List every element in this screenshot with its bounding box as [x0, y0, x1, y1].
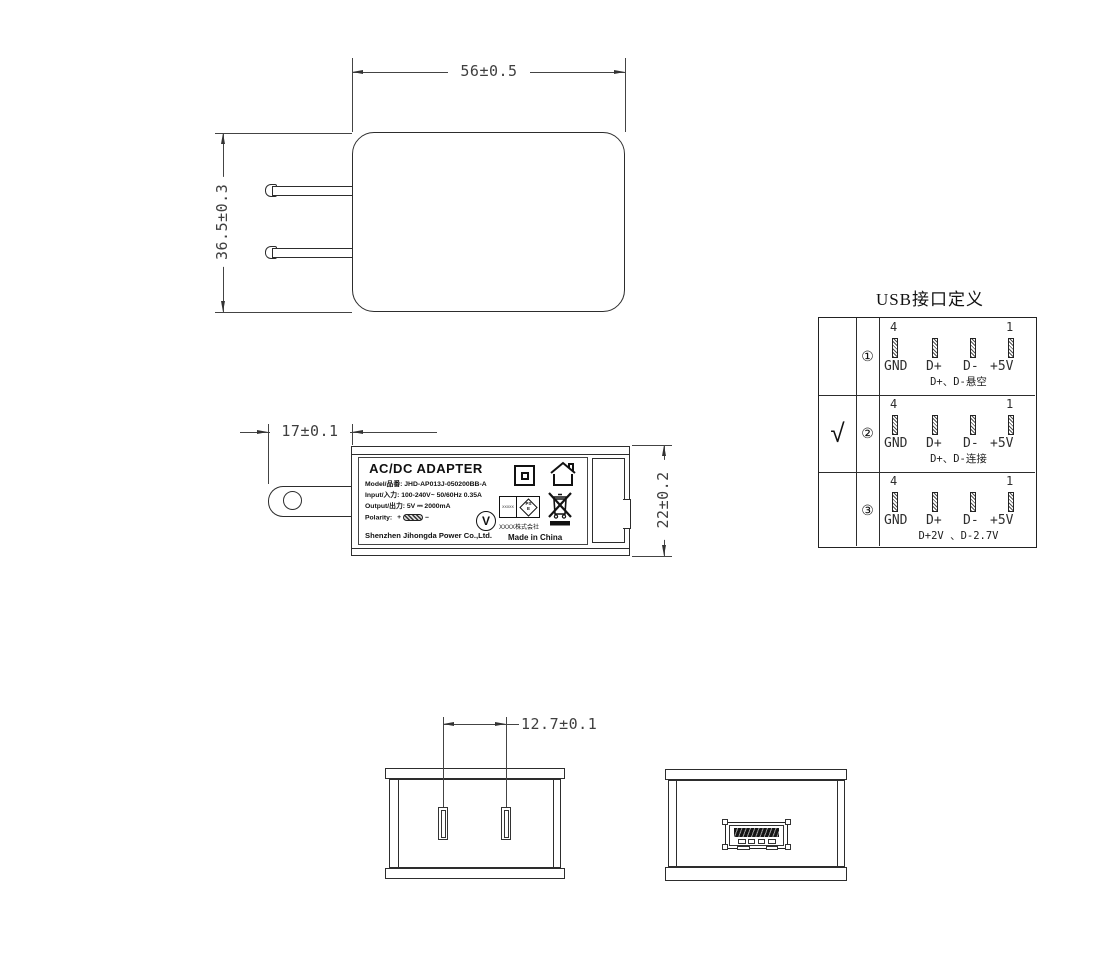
side-view-end-cap: [592, 458, 625, 543]
dimension-arrow-right: [495, 722, 506, 726]
usb-view-cap-top: [665, 769, 847, 780]
pin-contact-icon: [970, 415, 976, 435]
front-view-body: [352, 132, 625, 312]
pin-number-4: 4: [890, 398, 897, 410]
engineering-drawing: 56±0.5 36.5±0.3 17±0.1 22±0.2 AC/DC ADAP…: [0, 0, 1100, 953]
efficiency-level-icon: V: [476, 511, 496, 531]
circled-number: ③: [861, 502, 874, 519]
pse-mark: XXXXX PS E: [499, 496, 540, 518]
pin-config-note: D+2V 、D-2.7V: [879, 531, 1038, 542]
usb-port-corner-tab: [785, 844, 791, 850]
pin-label-dplus: D+: [926, 514, 942, 527]
pse-diamond-cell: PS E: [517, 497, 539, 517]
bottom-view-inner-edge: [553, 779, 554, 868]
dimension-arrow-left: [352, 70, 363, 74]
dimension-extension-line: [215, 312, 352, 313]
dimension-extension-line: [632, 445, 672, 446]
dimension-extension-line: [632, 556, 672, 557]
pse-e: E: [517, 507, 540, 512]
front-view-prong-bottom: [272, 248, 352, 258]
usb-shell-foot: [737, 846, 750, 850]
circled-number: ①: [861, 348, 874, 365]
class2-inner-square: [521, 472, 529, 480]
pin-number-4: 4: [890, 475, 897, 487]
pin-label-dplus: D+: [926, 437, 942, 450]
usb-port-corner-tab: [722, 844, 728, 850]
pin-label-dplus: D+: [926, 360, 942, 373]
plug-blade-slot-left: [438, 807, 448, 840]
dimension-arrow-right: [352, 430, 363, 434]
label-polarity-text: Polarity:: [365, 514, 392, 521]
usb-shell-foot: [766, 846, 778, 850]
pin-label-5v: +5V: [990, 360, 1013, 373]
dimension-pin-spacing-text: 12.7±0.1: [521, 717, 597, 733]
table-pin-cell: 4 1 GND D+ D- +5V D+、D-悬空: [879, 318, 1038, 395]
pse-diamond-text: PS E: [517, 502, 540, 512]
label-company-line: Shenzhen Jihongda Power Co.,Ltd.: [365, 532, 492, 540]
pin-config-note: D+、D-悬空: [879, 377, 1038, 388]
label-input-line: Input/入力: 100-240V~ 50/60Hz 0.35A: [365, 492, 482, 499]
bottom-view-cap-bottom: [385, 868, 565, 879]
polarity-plus-sign: +: [397, 514, 401, 521]
pin-label-gnd: GND: [884, 437, 907, 450]
label-made-in: Made in China: [508, 534, 562, 543]
pse-agency-text: XXXXX: [502, 505, 514, 509]
pin-contact-icon: [932, 492, 938, 512]
pin-number-1: 1: [1006, 475, 1013, 487]
usb-contact-pad: [748, 839, 755, 844]
label-model-line: Model/品番: JHD-AP013J-050200BB-A: [365, 481, 487, 488]
weee-bin-icon: [546, 490, 574, 528]
pin-label-dminus: D-: [963, 360, 979, 373]
label-output-line: Output/出力: 5V ⎓ 2000mA: [365, 503, 451, 510]
dimension-arrow-down: [221, 301, 225, 312]
dimension-width-text: 56±0.5: [448, 64, 530, 80]
dimension-arrow-up: [662, 445, 666, 456]
polarity-minus-sign: −: [425, 514, 429, 521]
dimension-extension-line: [215, 133, 352, 134]
dimension-extension-line: [625, 58, 626, 132]
usb-port-corner-tab: [785, 819, 791, 825]
pin-contact-icon: [970, 492, 976, 512]
label-cert-company: XXXX株式会社: [499, 525, 539, 532]
pin-contact-icon: [1008, 415, 1014, 435]
circled-number: ②: [861, 425, 874, 442]
table-check-cell: [819, 318, 856, 395]
dimension-extension-line: [506, 717, 507, 807]
bottom-view-inner-edge: [398, 779, 399, 868]
table-check-cell: √: [819, 395, 856, 472]
dimension-arrow-down: [662, 545, 666, 556]
usb-port-corner-tab: [722, 819, 728, 825]
dimension-extension-line: [268, 424, 269, 484]
dimension-arrow-left: [443, 722, 454, 726]
dimension-arrow-right: [614, 70, 625, 74]
pin-contact-icon: [892, 415, 898, 435]
pin-number-1: 1: [1006, 398, 1013, 410]
dimension-prong-text: 17±0.1: [270, 424, 350, 440]
usb-view-cap-bottom: [665, 867, 847, 881]
pin-number-4: 4: [890, 321, 897, 333]
dimension-extension-line: [352, 424, 353, 445]
bottom-view-cap-top: [385, 768, 565, 779]
pin-contact-icon: [932, 415, 938, 435]
indoor-use-icon: [549, 461, 577, 488]
usb-view-inner-edge: [676, 780, 677, 867]
usb-contact-tongue: [734, 828, 779, 837]
table-index-cell: ①: [856, 318, 879, 395]
pin-label-gnd: GND: [884, 514, 907, 527]
pse-agency-cell: XXXXX: [500, 497, 517, 517]
side-view-prong: [268, 486, 351, 517]
dimension-depth-text: 22±0.2: [656, 460, 672, 540]
usb-contact-pad: [738, 839, 746, 844]
class2-insulation-icon: [514, 465, 535, 486]
pin-config-note: D+、D-连接: [879, 454, 1038, 465]
table-pin-cell: 4 1 GND D+ D- +5V D+2V 、D-2.7V: [879, 472, 1038, 546]
side-view-edge-line-bottom: [351, 548, 630, 549]
usb-pin-table: ① 4 1 GND D+ D- +5V D+、D-悬空 √ ② 4 1 GND: [818, 317, 1037, 548]
nameplate-label: AC/DC ADAPTER Model/品番: JHD-AP013J-05020…: [358, 457, 588, 545]
pin-label-dminus: D-: [963, 437, 979, 450]
usb-contact-pad: [758, 839, 765, 844]
usb-table-title: USB接口定义: [845, 291, 1015, 309]
table-check-cell: [819, 472, 856, 549]
polarity-connector-icon: [403, 514, 423, 521]
pin-label-5v: +5V: [990, 437, 1013, 450]
usb-view-inner-edge: [837, 780, 838, 867]
efficiency-level-letter: V: [482, 514, 490, 528]
dimension-height-text: 36.5±0.3: [215, 177, 231, 267]
pin-label-dminus: D-: [963, 514, 979, 527]
pin-number-1: 1: [1006, 321, 1013, 333]
dimension-arrow-up: [221, 133, 225, 144]
pin-contact-icon: [1008, 338, 1014, 358]
plug-blade-slot-right: [501, 807, 511, 840]
usb-contact-pad: [768, 839, 776, 844]
dimension-extension-line: [443, 717, 444, 807]
side-view-edge-line-top: [351, 454, 630, 455]
front-view-prong-top: [272, 186, 352, 196]
pin-contact-icon: [932, 338, 938, 358]
pin-contact-icon: [892, 338, 898, 358]
pin-contact-icon: [1008, 492, 1014, 512]
dimension-leader-line: [506, 724, 519, 725]
pin-contact-icon: [892, 492, 898, 512]
bottom-view-body: [389, 779, 561, 868]
check-mark: √: [830, 418, 844, 449]
label-title: AC/DC ADAPTER: [367, 462, 485, 476]
pin-label-5v: +5V: [990, 514, 1013, 527]
side-view-prong-hole: [283, 491, 302, 510]
table-index-cell: ②: [856, 395, 879, 472]
dimension-arrow-left: [257, 430, 268, 434]
table-pin-cell: 4 1 GND D+ D- +5V D+、D-连接: [879, 395, 1038, 472]
side-view-end-notch: [623, 499, 631, 529]
label-polarity-line: Polarity: +−: [365, 514, 429, 522]
table-index-cell: ③: [856, 472, 879, 549]
pin-contact-icon: [970, 338, 976, 358]
pin-label-gnd: GND: [884, 360, 907, 373]
